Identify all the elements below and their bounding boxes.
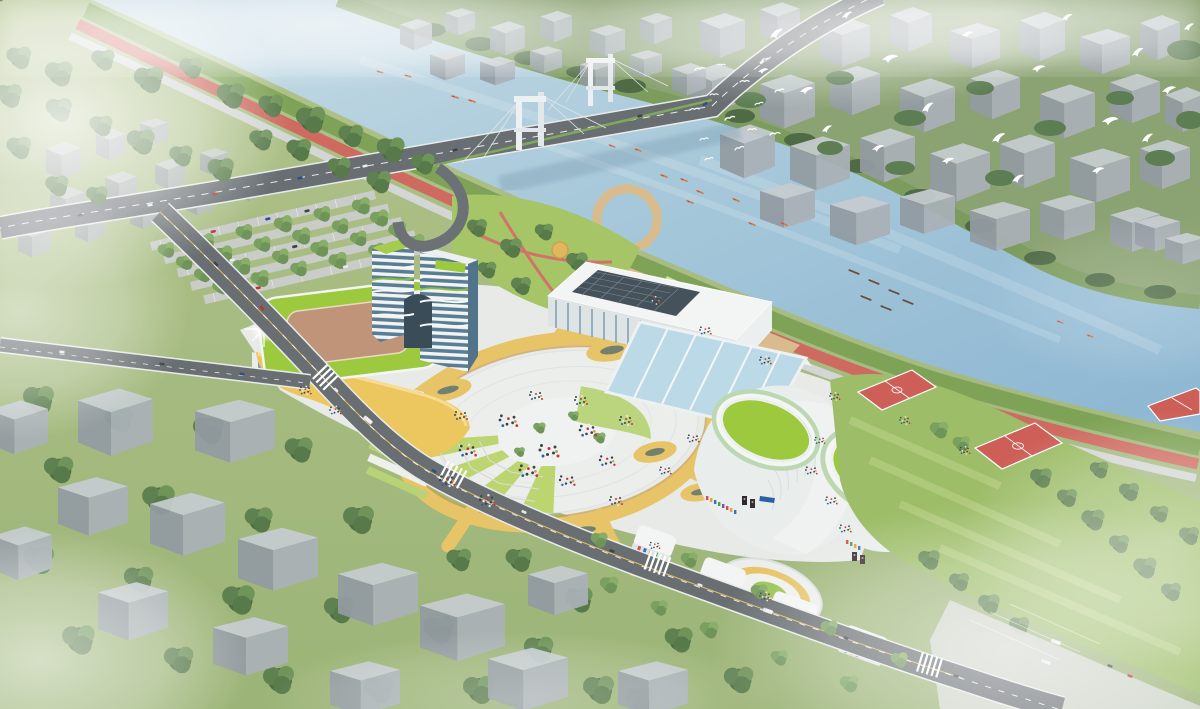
tower-arch-opening: [404, 294, 432, 348]
architectural-rendering: [0, 0, 1200, 709]
tower-side-glass: [468, 260, 478, 372]
rendering-canvas: [0, 0, 1200, 709]
playground: [552, 242, 568, 258]
